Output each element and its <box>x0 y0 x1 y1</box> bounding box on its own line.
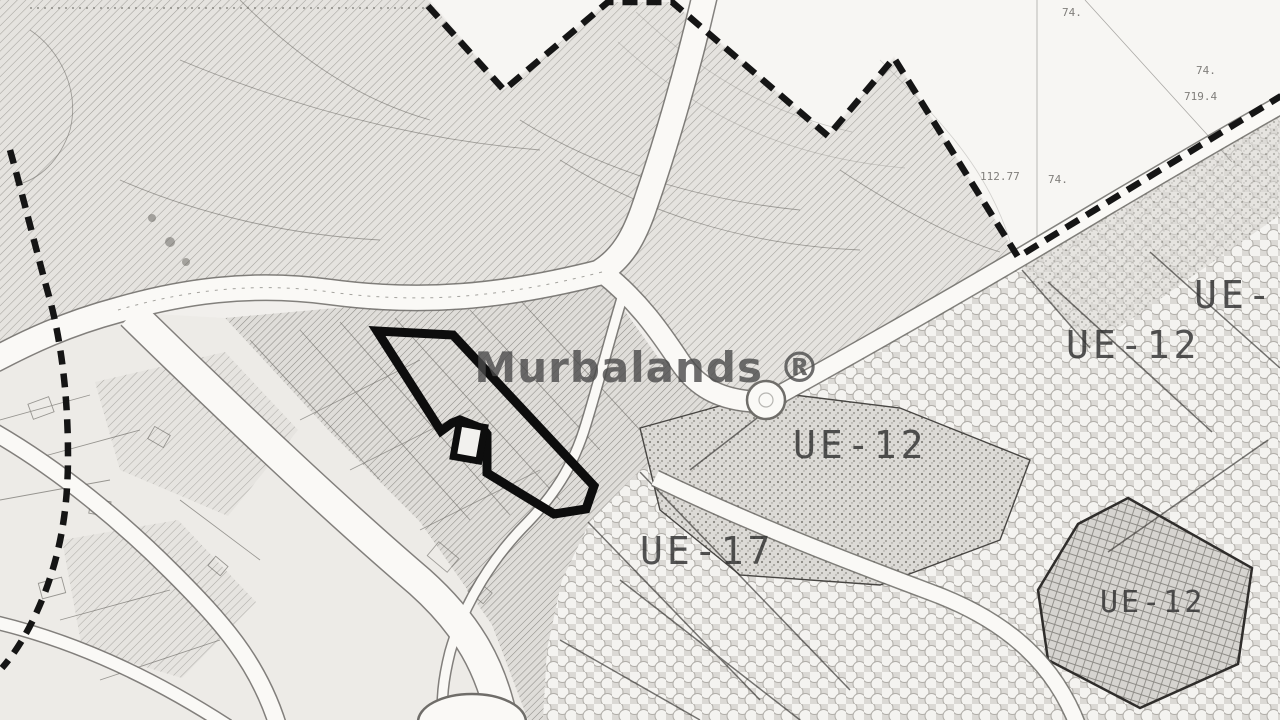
zoning-map-scan: UE- UE-12 UE-12 UE-17 UE-12 74. 719.4 11… <box>0 0 1280 720</box>
zone-label-ue12-center-right: UE-12 <box>793 423 927 467</box>
highlight-parcel-annex <box>453 423 485 461</box>
zone-label-ue12-bottom-right: UE-12 <box>1100 585 1205 620</box>
zone-label-ue12-upper-right: UE-12 <box>1066 323 1200 367</box>
survey-number: 112.77 <box>980 170 1020 183</box>
zone-label-ue-partial: UE- <box>1194 273 1275 317</box>
survey-number: 74. <box>1196 64 1216 77</box>
survey-number: 74. <box>1048 173 1068 186</box>
map-svg: UE- UE-12 UE-12 UE-17 UE-12 74. 719.4 11… <box>0 0 1280 720</box>
survey-number: 719.4 <box>1184 90 1217 103</box>
zone-label-ue17-center: UE-17 <box>640 529 774 573</box>
survey-number: 74. <box>1062 6 1082 19</box>
watermark-text: Murbalands ® <box>474 343 821 392</box>
